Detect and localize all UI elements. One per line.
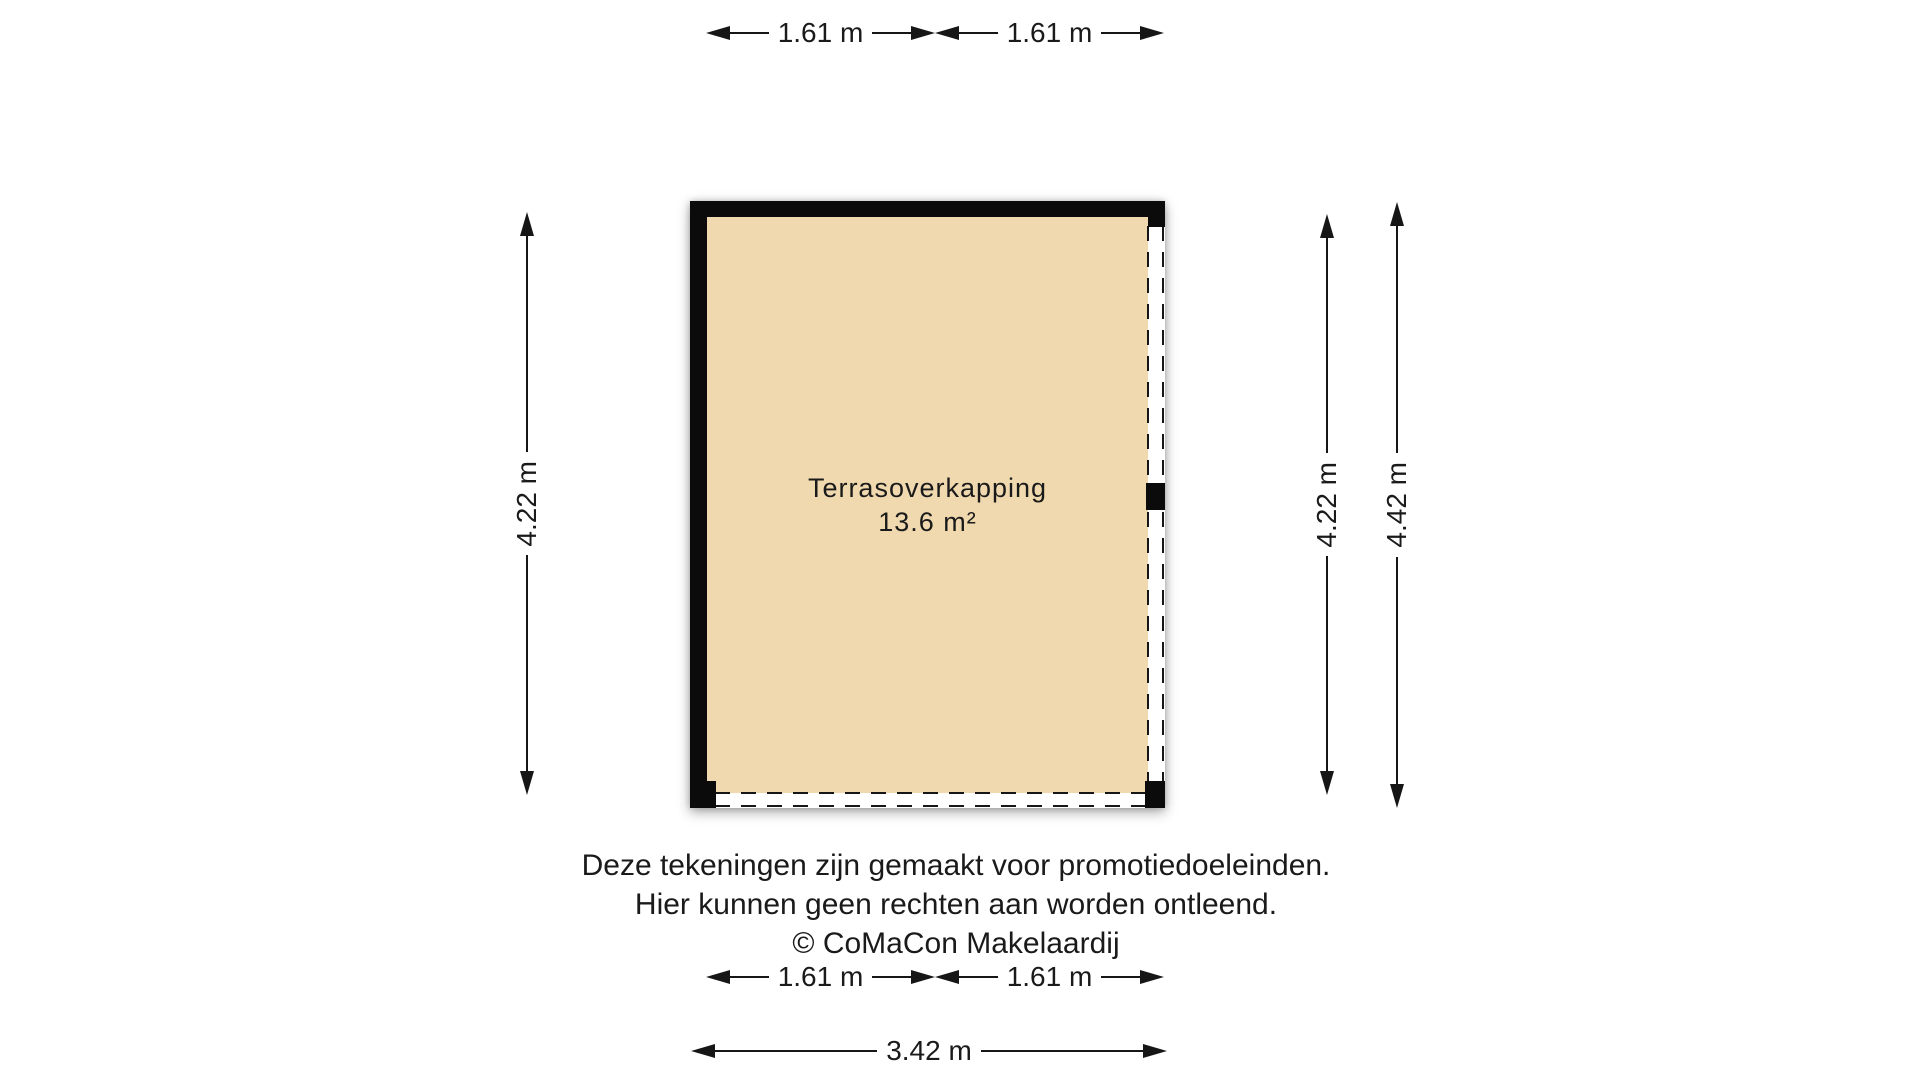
dimension-label: 1.61 m <box>998 961 1102 993</box>
dimension-label: 1.61 m <box>998 17 1102 49</box>
corner-post-bottom-left <box>690 781 716 808</box>
dimension-label: 4.22 m <box>511 452 543 556</box>
dimension-line <box>526 236 528 452</box>
floor-plan-page: 1.61 m 1.61 m 4.22 m Terrasoverkapping 1… <box>0 0 1920 1080</box>
dimension-line <box>872 976 911 978</box>
dimension-label: 1.61 m <box>769 961 873 993</box>
dimension-line <box>1101 976 1140 978</box>
dim-bottom-right-segment: 1.61 m <box>935 965 1164 989</box>
disclaimer-line-3: © CoMaCon Makelaardij <box>456 924 1456 963</box>
dimension-label: 4.22 m <box>1311 453 1343 557</box>
arrow-down-icon <box>520 771 534 795</box>
dimension-line <box>959 32 998 34</box>
arrow-left-icon <box>935 26 959 40</box>
disclaimer-line-1: Deze tekeningen zijn gemaakt voor promot… <box>456 846 1456 885</box>
dim-top-right-segment: 1.61 m <box>935 21 1164 45</box>
dimension-line <box>715 1050 877 1052</box>
dimension-line <box>981 1050 1143 1052</box>
dimension-line <box>1101 32 1140 34</box>
disclaimer-line-2: Hier kunnen geen rechten aan worden ontl… <box>456 885 1456 924</box>
arrow-down-icon <box>1390 784 1404 808</box>
disclaimer-text: Deze tekeningen zijn gemaakt voor promot… <box>456 846 1456 963</box>
dimension-line <box>959 976 998 978</box>
room-name: Terrasoverkapping <box>808 471 1047 505</box>
arrow-right-icon <box>911 26 935 40</box>
arrow-down-icon <box>1320 771 1334 795</box>
arrow-right-icon <box>1143 1044 1167 1058</box>
dim-top-left-segment: 1.61 m <box>706 21 935 45</box>
floor-plan: Terrasoverkapping 13.6 m² <box>690 201 1165 808</box>
arrow-left-icon <box>935 970 959 984</box>
arrow-left-icon <box>706 970 730 984</box>
arrow-left-icon <box>691 1044 715 1058</box>
dimension-line <box>1396 226 1398 453</box>
dimension-line <box>872 32 911 34</box>
arrow-up-icon <box>1390 202 1404 226</box>
dim-bottom-left-segment: 1.61 m <box>706 965 935 989</box>
corner-post-top-right <box>1148 217 1165 227</box>
dim-right-outer-height: 4.42 m <box>1383 202 1411 808</box>
room-floor: Terrasoverkapping 13.6 m² <box>707 217 1148 793</box>
dimension-label: 3.42 m <box>877 1035 981 1067</box>
dim-right-inner-height: 4.22 m <box>1313 214 1341 795</box>
arrow-right-icon <box>911 970 935 984</box>
dimension-line <box>526 555 528 771</box>
wall-post-right-middle <box>1146 483 1165 510</box>
open-wall-bottom-inner-dash <box>715 792 1145 794</box>
room-area: 13.6 m² <box>878 505 977 539</box>
arrow-right-icon <box>1140 970 1164 984</box>
dimension-label: 4.42 m <box>1381 453 1413 557</box>
wall-left <box>690 201 707 808</box>
dim-left-inner-height: 4.22 m <box>513 212 541 795</box>
dim-bottom-total-width: 3.42 m <box>691 1039 1167 1063</box>
corner-post-bottom-right <box>1145 781 1165 808</box>
dimension-line <box>1326 238 1328 453</box>
arrow-up-icon <box>1320 214 1334 238</box>
dimension-line <box>730 32 769 34</box>
arrow-left-icon <box>706 26 730 40</box>
dimension-line <box>1396 557 1398 784</box>
wall-top <box>690 201 1165 217</box>
arrow-up-icon <box>520 212 534 236</box>
dimension-label: 1.61 m <box>769 17 873 49</box>
dimension-line <box>1326 556 1328 771</box>
arrow-right-icon <box>1140 26 1164 40</box>
open-wall-bottom-outer-dash <box>715 805 1145 807</box>
dimension-line <box>730 976 769 978</box>
